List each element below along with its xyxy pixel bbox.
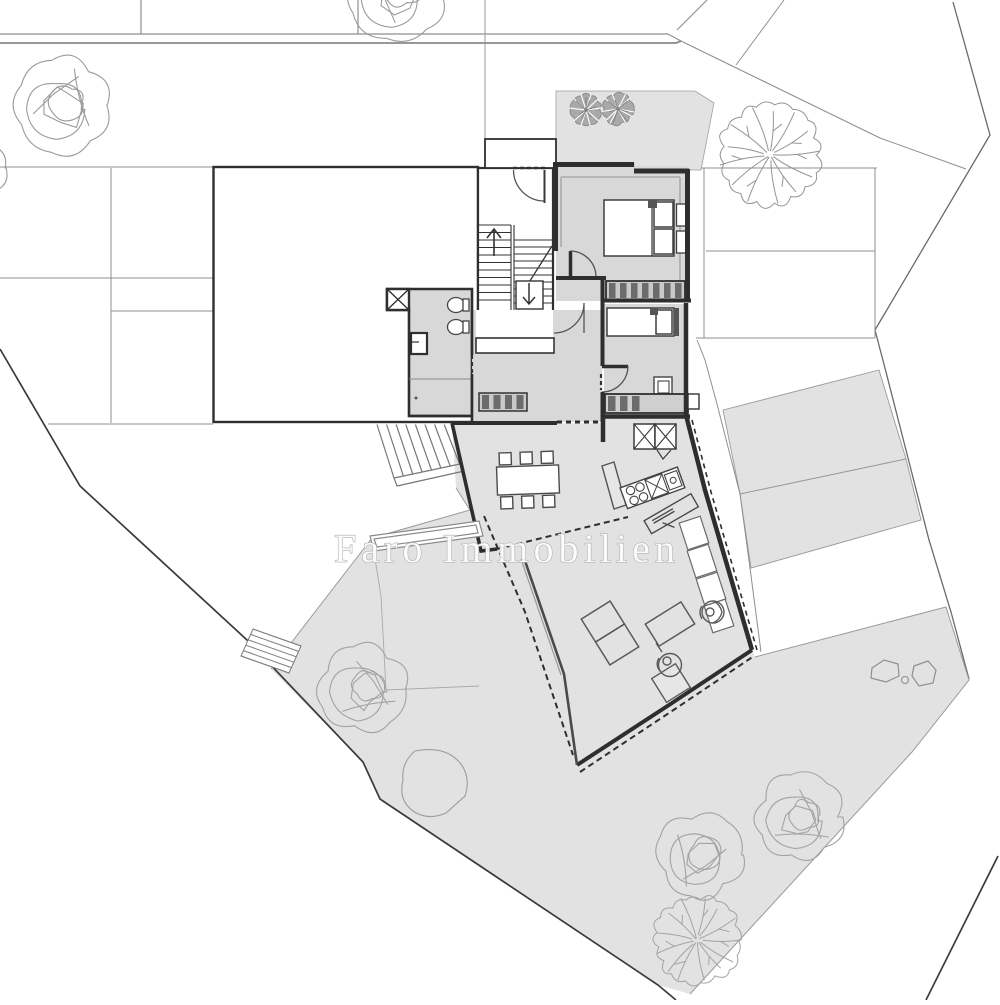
svg-text:Faro Immobilien: Faro Immobilien <box>334 526 675 571</box>
